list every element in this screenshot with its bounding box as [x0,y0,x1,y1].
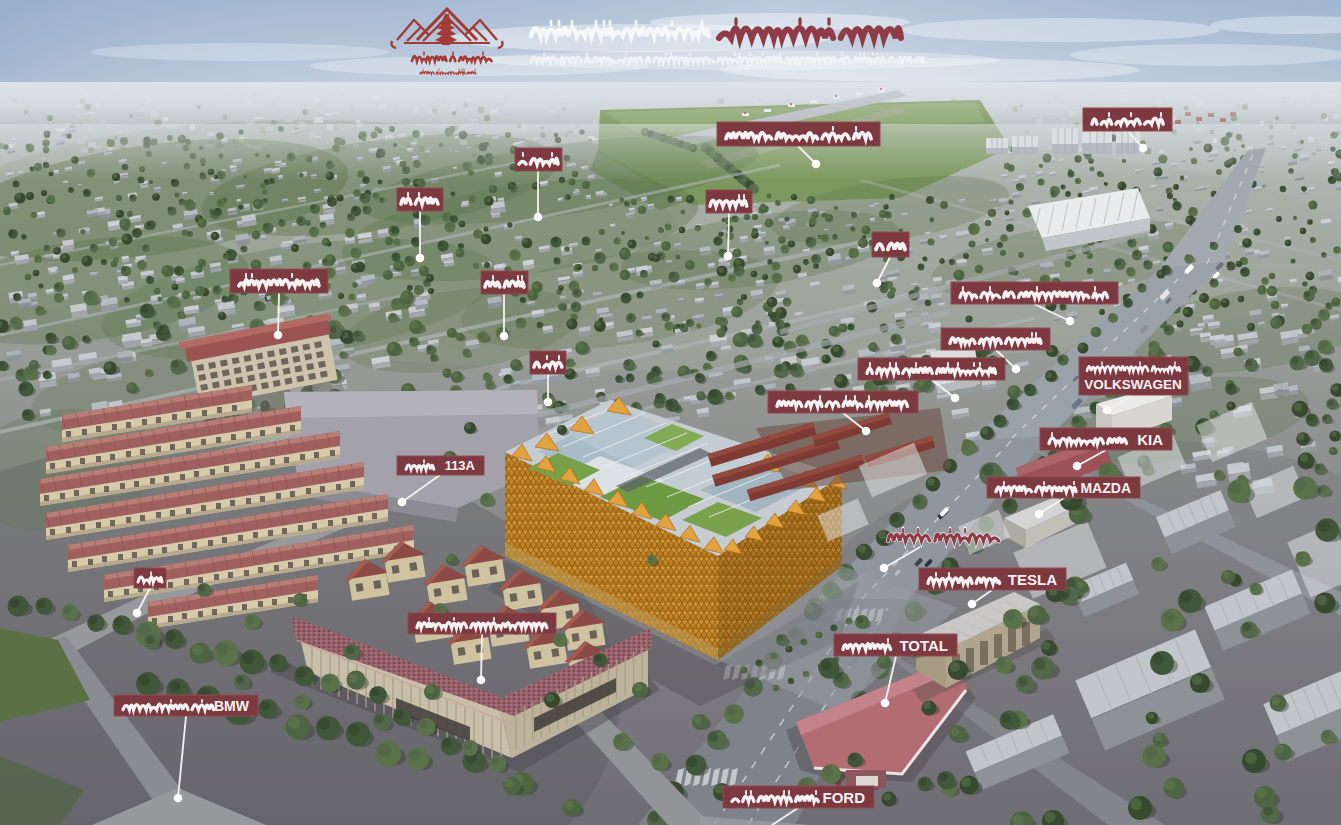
svg-text:BMW: BMW [214,698,250,714]
svg-text:KIA: KIA [1137,431,1163,448]
svg-text:FORD: FORD [823,789,866,806]
svg-text:TESLA: TESLA [1008,571,1057,588]
svg-text:VOLKSWAGEN: VOLKSWAGEN [1084,377,1182,392]
svg-text:MAZDA: MAZDA [1080,480,1131,496]
svg-text:113A: 113A [445,458,476,473]
svg-text:TOTAL: TOTAL [899,637,948,654]
